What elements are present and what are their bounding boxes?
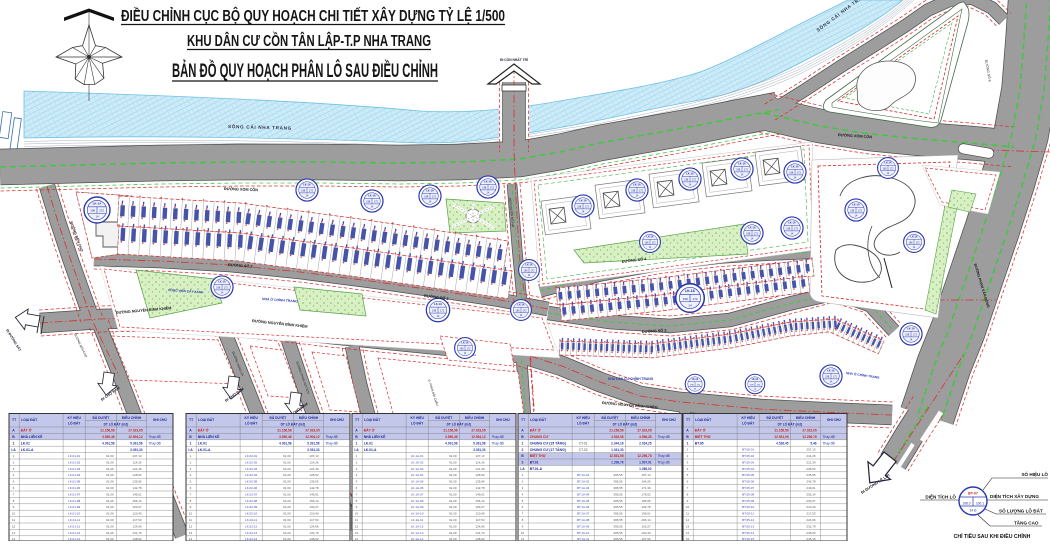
svg-text:142,78: 142,78 bbox=[475, 486, 485, 490]
svg-text:12.904,12: 12.904,12 bbox=[471, 435, 485, 439]
svg-text:4.091,58: 4.091,58 bbox=[445, 441, 458, 445]
svg-text:91,00: 91,00 bbox=[449, 531, 457, 535]
svg-text:91,00: 91,00 bbox=[106, 480, 114, 484]
svg-text:91,00: 91,00 bbox=[283, 492, 291, 496]
svg-text:LK.01-06: LK.01-06 bbox=[68, 486, 81, 490]
svg-text:217,53: 217,53 bbox=[806, 512, 816, 516]
svg-text:395,55: 395,55 bbox=[613, 524, 623, 528]
svg-text:CHUNG CƯ (15 TẦNG): CHUNG CƯ (15 TẦNG) bbox=[530, 441, 566, 445]
svg-text:12.296,78: 12.296,78 bbox=[637, 454, 651, 458]
svg-text:LOẠI ĐẤT: LOẠI ĐẤT bbox=[364, 418, 381, 422]
svg-text:BT.05-12: BT.05-12 bbox=[742, 518, 754, 522]
svg-text:LK.02-05: LK.02-05 bbox=[245, 480, 258, 484]
svg-text:110,40: 110,40 bbox=[133, 512, 142, 516]
svg-text:156,14: 156,14 bbox=[309, 499, 319, 503]
svg-text:135,65: 135,65 bbox=[132, 480, 142, 484]
svg-text:ĐẤT Ở: ĐẤT Ở bbox=[530, 428, 541, 433]
svg-text:LK.02-03: LK.02-03 bbox=[245, 467, 258, 471]
svg-text:21.156,56: 21.156,56 bbox=[609, 429, 623, 433]
svg-text:KÝ HIỆU: KÝ HIỆU bbox=[244, 415, 258, 420]
svg-text:21.156,56: 21.156,56 bbox=[443, 429, 457, 433]
svg-text:91,00: 91,00 bbox=[283, 512, 291, 516]
svg-text:395,55: 395,55 bbox=[613, 537, 623, 541]
svg-text:91,00: 91,00 bbox=[449, 512, 457, 516]
svg-text:LK.1A-11: LK.1A-11 bbox=[411, 518, 424, 522]
svg-text:12: 12 bbox=[355, 524, 359, 528]
svg-text:DT LÔ ĐẤT (m2): DT LÔ ĐẤT (m2) bbox=[778, 422, 803, 427]
svg-text:DT LÔ ĐẤT (m2): DT LÔ ĐẤT (m2) bbox=[613, 422, 638, 427]
svg-text:LOẠI ĐẤT: LOẠI ĐẤT bbox=[21, 418, 38, 422]
svg-text:138,02: 138,02 bbox=[309, 537, 319, 541]
svg-text:192,78: 192,78 bbox=[641, 505, 651, 509]
svg-text:3.516,08: 3.516,08 bbox=[611, 435, 624, 439]
svg-text:ĐIỀU CHỈNH CỤC BỘ QUY HOẠCH CH: ĐIỀU CHỈNH CỤC BỘ QUY HOẠCH CHI TIẾT XÂY… bbox=[121, 7, 505, 25]
svg-text:I.A: I.A bbox=[11, 448, 16, 452]
svg-text:117,53: 117,53 bbox=[310, 518, 319, 522]
svg-text:221,39: 221,39 bbox=[806, 460, 816, 464]
svg-text:138,02: 138,02 bbox=[132, 537, 142, 541]
svg-text:12.531,06: 12.531,06 bbox=[774, 435, 788, 439]
svg-text:BT.05-07: BT.05-07 bbox=[742, 486, 754, 490]
svg-text:1.296,78: 1.296,78 bbox=[611, 461, 624, 465]
svg-text:LK.02-09: LK.02-09 bbox=[245, 505, 258, 509]
svg-text:91,00: 91,00 bbox=[449, 460, 457, 464]
svg-text:BT.05-06: BT.05-06 bbox=[742, 480, 754, 484]
svg-text:BT.05-04: BT.05-04 bbox=[742, 467, 754, 471]
svg-text:11: 11 bbox=[355, 518, 358, 522]
svg-text:LOẠI ĐẤT: LOẠI ĐẤT bbox=[198, 418, 215, 422]
svg-text:206,14: 206,14 bbox=[641, 518, 651, 522]
svg-text:ĐÃ DUYỆT: ĐÃ DUYỆT bbox=[269, 415, 286, 420]
svg-text:91,00: 91,00 bbox=[449, 473, 457, 477]
svg-text:11: 11 bbox=[686, 512, 689, 516]
svg-text:ĐIỀU CHỈNH: ĐIỀU CHỈNH bbox=[631, 415, 651, 420]
svg-text:91,00: 91,00 bbox=[449, 486, 457, 490]
svg-text:231,79: 231,79 bbox=[806, 524, 816, 528]
svg-text:1: 1 bbox=[356, 441, 358, 445]
svg-text:ĐIỀU CHỈNH: ĐIỀU CHỈNH bbox=[465, 415, 485, 420]
svg-text:3: 3 bbox=[522, 461, 524, 465]
svg-text:395,55: 395,55 bbox=[613, 505, 623, 509]
svg-text:91,00: 91,00 bbox=[449, 492, 457, 496]
svg-text:27.023,05: 27.023,05 bbox=[802, 429, 816, 433]
svg-text:LK.02-10: LK.02-10 bbox=[245, 512, 258, 516]
svg-text:ĐẤT Ở: ĐẤT Ở bbox=[695, 428, 706, 433]
svg-text:224,66: 224,66 bbox=[806, 518, 816, 522]
svg-text:LK.1A-05: LK.1A-05 bbox=[411, 480, 424, 484]
svg-text:91,00: 91,00 bbox=[106, 486, 114, 490]
svg-text:156,14: 156,14 bbox=[475, 499, 485, 503]
svg-text:114,26: 114,26 bbox=[310, 460, 319, 464]
svg-text:LK.01-A: LK.01-A bbox=[21, 448, 34, 452]
svg-text:10: 10 bbox=[355, 512, 359, 516]
svg-text:LK.1A-12: LK.1A-12 bbox=[411, 524, 424, 528]
svg-text:KÝ HIỆU: KÝ HIỆU bbox=[67, 415, 81, 420]
svg-text:14: 14 bbox=[189, 537, 193, 541]
svg-text:107,13: 107,13 bbox=[309, 454, 319, 458]
svg-text:I.A: I.A bbox=[354, 448, 359, 452]
svg-text:CT-02: CT-02 bbox=[579, 448, 588, 452]
svg-text:10: 10 bbox=[189, 512, 193, 516]
svg-text:BT.1A-01: BT.1A-01 bbox=[577, 473, 590, 477]
svg-text:LK.1A-08: LK.1A-08 bbox=[411, 499, 424, 503]
svg-text:117,53: 117,53 bbox=[476, 518, 485, 522]
svg-text:BT.1A-07: BT.1A-07 bbox=[577, 512, 590, 516]
svg-text:KÝ HIỆU: KÝ HIỆU bbox=[410, 415, 424, 420]
svg-text:BẢN ĐỒ QUY HOẠCH PHÂN LÔ SAU Đ: BẢN ĐỒ QUY HOẠCH PHÂN LÔ SAU ĐIỀU CHỈNH bbox=[172, 60, 438, 82]
svg-text:LK.01-01: LK.01-01 bbox=[68, 454, 81, 458]
svg-text:103,27: 103,27 bbox=[309, 505, 319, 509]
svg-text:91,00: 91,00 bbox=[449, 454, 457, 458]
svg-text:LK.01: LK.01 bbox=[364, 441, 373, 445]
svg-text:ĐIỀU CHỈNH: ĐIỀU CHỈNH bbox=[796, 415, 816, 420]
svg-text:LK.01-03: LK.01-03 bbox=[68, 467, 81, 471]
svg-text:LK.01-10: LK.01-10 bbox=[68, 512, 81, 516]
svg-text:4.091,58: 4.091,58 bbox=[102, 441, 115, 445]
svg-text:Thay đổi: Thay đổi bbox=[658, 461, 671, 465]
svg-text:BT.05: BT.05 bbox=[695, 441, 704, 445]
svg-text:DT LÔ ĐẤT (m2): DT LÔ ĐẤT (m2) bbox=[281, 422, 306, 427]
svg-text:BT.1A-10: BT.1A-10 bbox=[577, 531, 590, 535]
svg-text:210,40: 210,40 bbox=[806, 505, 816, 509]
svg-text:153,27: 153,27 bbox=[641, 524, 651, 528]
svg-text:91,00: 91,00 bbox=[106, 460, 114, 464]
svg-text:21.156,56: 21.156,56 bbox=[100, 429, 114, 433]
svg-text:91,00: 91,00 bbox=[106, 537, 114, 541]
svg-text:LOẠI ĐẤT: LOẠI ĐẤT bbox=[530, 418, 547, 422]
svg-text:91,00: 91,00 bbox=[283, 499, 291, 503]
svg-text:DT LÔ ĐẤT (m2): DT LÔ ĐẤT (m2) bbox=[447, 422, 472, 427]
svg-text:BT.05-05: BT.05-05 bbox=[742, 473, 754, 477]
svg-text:LK.1A-10: LK.1A-10 bbox=[411, 512, 424, 516]
svg-text:LÔ ĐẤT: LÔ ĐẤT bbox=[411, 421, 423, 426]
svg-text:4.526,45: 4.526,45 bbox=[776, 441, 789, 445]
svg-text:5.391,58: 5.391,58 bbox=[307, 441, 320, 445]
svg-text:LK.01-09: LK.01-09 bbox=[68, 505, 81, 509]
svg-text:SỐ HIỆU LÔ: SỐ HIỆU LÔ bbox=[1021, 470, 1048, 477]
svg-text:131,79: 131,79 bbox=[475, 531, 485, 535]
svg-text:91,00: 91,00 bbox=[283, 460, 291, 464]
svg-text:114,26: 114,26 bbox=[133, 460, 142, 464]
svg-text:110,40: 110,40 bbox=[310, 512, 319, 516]
svg-text:Thay đổi: Thay đổi bbox=[326, 441, 339, 445]
svg-text:185,65: 185,65 bbox=[641, 499, 651, 503]
svg-text:ĐÃ DUYỆT: ĐÃ DUYỆT bbox=[92, 415, 109, 420]
svg-text:LK.1A-04: LK.1A-04 bbox=[411, 473, 424, 477]
svg-text:ĐÃ DUYỆT: ĐÃ DUYỆT bbox=[435, 415, 452, 420]
svg-text:3.391,33: 3.391,33 bbox=[130, 448, 143, 452]
svg-text:124,66: 124,66 bbox=[132, 524, 142, 528]
svg-text:167,53: 167,53 bbox=[641, 537, 651, 541]
svg-text:121,39: 121,39 bbox=[309, 467, 319, 471]
svg-text:138,02: 138,02 bbox=[475, 537, 485, 541]
svg-text:12.904,12: 12.904,12 bbox=[305, 435, 319, 439]
svg-text:91,00: 91,00 bbox=[106, 473, 114, 477]
svg-text:91,00: 91,00 bbox=[106, 524, 114, 528]
svg-text:91,00: 91,00 bbox=[106, 492, 114, 496]
svg-text:11: 11 bbox=[521, 537, 524, 541]
svg-text:3.391,33: 3.391,33 bbox=[473, 448, 486, 452]
svg-text:Thay đổi: Thay đổi bbox=[149, 441, 162, 445]
svg-text:10: 10 bbox=[12, 512, 16, 516]
svg-text:3.590,46: 3.590,46 bbox=[102, 435, 115, 439]
svg-text:BIỆT THỰ: BIỆT THỰ bbox=[530, 453, 546, 458]
svg-text:156,14: 156,14 bbox=[132, 499, 142, 503]
svg-text:228,52: 228,52 bbox=[806, 467, 816, 471]
svg-text:121,39: 121,39 bbox=[475, 467, 485, 471]
svg-text:135,65: 135,65 bbox=[309, 480, 319, 484]
svg-text:14 lô: 14 lô bbox=[970, 509, 977, 513]
svg-text:242,78: 242,78 bbox=[806, 480, 816, 484]
svg-text:1.286,02: 1.286,02 bbox=[639, 467, 652, 471]
svg-text:KHU DÂN CƯ CỒN TÂN LẬP-T.P NHA: KHU DÂN CƯ CỒN TÂN LẬP-T.P NHA TRANG bbox=[187, 32, 431, 50]
svg-text:199,01: 199,01 bbox=[641, 512, 651, 516]
svg-text:Thay đổi: Thay đổi bbox=[492, 435, 505, 439]
svg-text:BIỆT THỰ: BIỆT THỰ bbox=[695, 434, 711, 439]
svg-text:128,52: 128,52 bbox=[309, 473, 319, 477]
svg-text:117,53: 117,53 bbox=[133, 518, 142, 522]
svg-text:SỐ LƯỢNG LÔ ĐẤT: SỐ LƯỢNG LÔ ĐẤT bbox=[999, 507, 1043, 514]
svg-text:5.391,58: 5.391,58 bbox=[473, 441, 486, 445]
svg-text:91,00: 91,00 bbox=[449, 524, 457, 528]
svg-text:CHỈ TIÊU SAU KHI ĐIỀU CHỈNH: CHỈ TIÊU SAU KHI ĐIỀU CHỈNH bbox=[954, 532, 1031, 540]
svg-text:91,00: 91,00 bbox=[449, 537, 457, 541]
svg-text:BT.1A-03: BT.1A-03 bbox=[577, 486, 590, 490]
svg-text:124,66: 124,66 bbox=[309, 524, 319, 528]
svg-text:142,78: 142,78 bbox=[132, 486, 142, 490]
svg-text:BT.1A-05: BT.1A-05 bbox=[577, 499, 590, 503]
svg-text:395,55: 395,55 bbox=[613, 486, 623, 490]
svg-text:13: 13 bbox=[189, 531, 193, 535]
svg-text:91,00: 91,00 bbox=[449, 518, 457, 522]
svg-text:KHU DÂN CƯ CHỈNH TRANG: KHU DÂN CƯ CHỈNH TRANG bbox=[608, 376, 654, 381]
svg-text:LK.1A-01: LK.1A-01 bbox=[411, 454, 424, 458]
svg-text:LK.01-05: LK.01-05 bbox=[68, 480, 81, 484]
svg-text:131,79: 131,79 bbox=[309, 531, 319, 535]
svg-text:LK.01: LK.01 bbox=[21, 441, 30, 445]
svg-text:Thay đổi: Thay đổi bbox=[492, 441, 505, 445]
svg-text:203,27: 203,27 bbox=[806, 499, 816, 503]
svg-text:LÔ ĐẤT: LÔ ĐẤT bbox=[68, 421, 80, 426]
svg-text:3.590,46: 3.590,46 bbox=[445, 435, 458, 439]
svg-text:91,00: 91,00 bbox=[449, 499, 457, 503]
svg-text:ĐIỀU CHỈNH: ĐIỀU CHỈNH bbox=[299, 415, 319, 420]
svg-text:103,27: 103,27 bbox=[475, 505, 485, 509]
svg-text:BT.1A-06: BT.1A-06 bbox=[577, 505, 590, 509]
svg-text:LK.01-02: LK.01-02 bbox=[68, 460, 81, 464]
svg-text:178,52: 178,52 bbox=[641, 492, 651, 496]
svg-text:ĐÃ DUYỆT: ĐÃ DUYỆT bbox=[766, 415, 783, 420]
svg-text:1: 1 bbox=[687, 441, 689, 445]
svg-text:LK.01-12: LK.01-12 bbox=[68, 524, 81, 528]
svg-text:BT.1A-11: BT.1A-11 bbox=[577, 537, 589, 541]
svg-text:LK.01-A: LK.01-A bbox=[364, 448, 377, 452]
svg-text:395,55: 395,55 bbox=[613, 512, 623, 516]
svg-text:ĐẤT Ở: ĐẤT Ở bbox=[198, 428, 209, 433]
svg-text:12.904,12: 12.904,12 bbox=[128, 435, 142, 439]
svg-text:TẦNG CAO: TẦNG CAO bbox=[1014, 520, 1039, 526]
svg-text:LK.02-02: LK.02-02 bbox=[245, 460, 258, 464]
svg-text:2.344,18: 2.344,18 bbox=[611, 441, 624, 445]
svg-text:LK.02-14: LK.02-14 bbox=[245, 537, 258, 541]
svg-text:DT LÔ ĐẤT (m2): DT LÔ ĐẤT (m2) bbox=[104, 422, 129, 427]
svg-text:ĐÃ DUYỆT: ĐÃ DUYỆT bbox=[601, 415, 618, 420]
svg-text:164,26: 164,26 bbox=[641, 480, 651, 484]
svg-text:238,02: 238,02 bbox=[806, 531, 816, 535]
svg-text:91,00: 91,00 bbox=[106, 531, 114, 535]
svg-text:LK.1A-09: LK.1A-09 bbox=[411, 505, 424, 509]
svg-text:I.A: I.A bbox=[520, 467, 525, 471]
svg-text:4.596,28: 4.596,28 bbox=[639, 435, 652, 439]
svg-text:160,40: 160,40 bbox=[641, 531, 651, 535]
svg-text:91,00: 91,00 bbox=[283, 467, 291, 471]
svg-text:NHÀ LIÊN KẾ: NHÀ LIÊN KẾ bbox=[364, 434, 386, 439]
svg-text:BT.05-15: BT.05-15 bbox=[742, 537, 754, 541]
svg-text:91,00: 91,00 bbox=[106, 512, 114, 516]
svg-text:142,78: 142,78 bbox=[309, 486, 319, 490]
svg-text:395,55: 395,55 bbox=[613, 518, 623, 522]
svg-text:ĐIỀU CHỈNH: ĐIỀU CHỈNH bbox=[122, 415, 142, 420]
svg-text:LK.1A-13: LK.1A-13 bbox=[411, 531, 424, 535]
svg-text:91,00: 91,00 bbox=[106, 499, 114, 503]
svg-text:DIỆN TÍCH LÔ: DIỆN TÍCH LÔ bbox=[925, 493, 956, 500]
svg-text:BT.05-02: BT.05-02 bbox=[742, 454, 754, 458]
svg-text:BT.05-08: BT.05-08 bbox=[742, 492, 754, 496]
svg-text:LK.02-13: LK.02-13 bbox=[245, 531, 258, 535]
svg-text:KÝ HIỆU: KÝ HIỆU bbox=[741, 415, 755, 420]
svg-text:GHI CHÚ: GHI CHÚ bbox=[496, 417, 511, 422]
svg-text:GHI CHÚ: GHI CHÚ bbox=[153, 417, 168, 422]
svg-text:Thay đổi: Thay đổi bbox=[326, 435, 339, 439]
svg-text:91,00: 91,00 bbox=[283, 518, 291, 522]
svg-text:1: 1 bbox=[522, 441, 524, 445]
svg-text:BT.1A-08: BT.1A-08 bbox=[577, 518, 590, 522]
svg-text:91,00: 91,00 bbox=[106, 454, 114, 458]
svg-text:149,01: 149,01 bbox=[132, 492, 142, 496]
svg-text:LÔ ĐẤT: LÔ ĐẤT bbox=[742, 421, 754, 426]
svg-text:LK.02-04: LK.02-04 bbox=[245, 473, 258, 477]
svg-text:CHUNG CƯ: CHUNG CƯ bbox=[530, 435, 549, 439]
svg-text:LK.01-08: LK.01-08 bbox=[68, 499, 81, 503]
svg-text:BT.05-14: BT.05-14 bbox=[742, 531, 754, 535]
svg-text:BT.1A-04: BT.1A-04 bbox=[577, 492, 590, 496]
svg-text:245,15: 245,15 bbox=[806, 537, 816, 541]
svg-text:108.0: 108.0 bbox=[963, 502, 971, 506]
svg-text:256,14: 256,14 bbox=[806, 492, 816, 496]
svg-text:BT.05-10: BT.05-10 bbox=[742, 505, 754, 509]
svg-text:157,13: 157,13 bbox=[641, 473, 651, 477]
svg-text:LK.01-A: LK.01-A bbox=[198, 448, 211, 452]
svg-text:LK.02-06: LK.02-06 bbox=[245, 486, 258, 490]
svg-text:149,01: 149,01 bbox=[475, 492, 485, 496]
svg-text:1.097,91: 1.097,91 bbox=[639, 461, 652, 465]
svg-text:LK.02-08: LK.02-08 bbox=[245, 499, 258, 503]
svg-text:LK.01-11: LK.01-11 bbox=[68, 518, 80, 522]
svg-text:91,00: 91,00 bbox=[106, 467, 114, 471]
svg-text:ĐẤT Ở: ĐẤT Ở bbox=[21, 428, 32, 433]
svg-text:CT-01: CT-01 bbox=[579, 441, 588, 445]
svg-text:91,00: 91,00 bbox=[106, 505, 114, 509]
svg-text:11: 11 bbox=[189, 518, 192, 522]
svg-text:LOẠI ĐẤT: LOẠI ĐẤT bbox=[695, 418, 712, 422]
svg-text:13: 13 bbox=[12, 531, 16, 535]
svg-text:214,26: 214,26 bbox=[806, 454, 816, 458]
svg-text:91,00: 91,00 bbox=[283, 486, 291, 490]
svg-text:BT.05-13: BT.05-13 bbox=[742, 524, 754, 528]
svg-text:12: 12 bbox=[686, 518, 690, 522]
svg-text:91,00: 91,00 bbox=[449, 467, 457, 471]
svg-text:128,52: 128,52 bbox=[132, 473, 142, 477]
svg-text:BT.05-11: BT.05-11 bbox=[742, 512, 754, 516]
svg-text:5.391,58: 5.391,58 bbox=[130, 441, 143, 445]
svg-text:LK.1A-06: LK.1A-06 bbox=[411, 486, 424, 490]
svg-text:LK.01-04: LK.01-04 bbox=[68, 473, 81, 477]
svg-text:LK.02-01: LK.02-01 bbox=[245, 454, 258, 458]
svg-text:CHUNG CƯ (17 TẦNG): CHUNG CƯ (17 TẦNG) bbox=[530, 448, 566, 452]
svg-text:1: 1 bbox=[13, 441, 15, 445]
svg-text:395,55: 395,55 bbox=[613, 473, 623, 477]
svg-text:Thay đổi: Thay đổi bbox=[658, 454, 671, 458]
svg-text:BT.05-09: BT.05-09 bbox=[742, 499, 754, 503]
svg-text:4.091,58: 4.091,58 bbox=[279, 441, 292, 445]
svg-text:171,39: 171,39 bbox=[641, 486, 651, 490]
svg-text:121,39: 121,39 bbox=[132, 467, 142, 471]
svg-text:LK.01: LK.01 bbox=[198, 441, 207, 445]
svg-text:27.023,05: 27.023,05 bbox=[128, 429, 142, 433]
svg-text:BT.05-01: BT.05-01 bbox=[742, 448, 754, 452]
svg-text:Thay đổi: Thay đổi bbox=[823, 435, 836, 439]
svg-text:91,00: 91,00 bbox=[283, 524, 291, 528]
svg-text:91,00: 91,00 bbox=[449, 505, 457, 509]
svg-text:BT-07: BT-07 bbox=[968, 492, 978, 496]
svg-text:12: 12 bbox=[12, 524, 16, 528]
svg-text:27.023,05: 27.023,05 bbox=[471, 429, 485, 433]
svg-text:BT.01: BT.01 bbox=[530, 461, 539, 465]
svg-text:10: 10 bbox=[521, 531, 525, 535]
svg-text:LÔ ĐẤT: LÔ ĐẤT bbox=[577, 421, 589, 426]
svg-text:LK.1A-02: LK.1A-02 bbox=[411, 460, 424, 464]
svg-text:12.296,78: 12.296,78 bbox=[802, 435, 816, 439]
svg-text:13: 13 bbox=[355, 531, 359, 535]
svg-text:27.023,05: 27.023,05 bbox=[637, 429, 651, 433]
svg-text:128,52: 128,52 bbox=[475, 473, 485, 477]
svg-text:124,66: 124,66 bbox=[475, 524, 485, 528]
svg-text:149,01: 149,01 bbox=[309, 492, 319, 496]
svg-text:3.590,46: 3.590,46 bbox=[279, 435, 292, 439]
svg-text:3.391,33: 3.391,33 bbox=[307, 448, 320, 452]
svg-text:14: 14 bbox=[355, 537, 359, 541]
svg-text:13: 13 bbox=[686, 524, 690, 528]
svg-text:249,01: 249,01 bbox=[806, 486, 816, 490]
svg-text:14: 14 bbox=[12, 537, 16, 541]
svg-text:Thay đổi: Thay đổi bbox=[823, 441, 836, 445]
svg-text:GHI CHÚ: GHI CHÚ bbox=[827, 417, 842, 422]
svg-text:Thay đổi: Thay đổi bbox=[658, 435, 671, 439]
svg-text:LK.01-13: LK.01-13 bbox=[68, 531, 81, 535]
svg-text:LK.1A-03: LK.1A-03 bbox=[411, 467, 424, 471]
svg-text:91,00: 91,00 bbox=[283, 537, 291, 541]
svg-text:91,00: 91,00 bbox=[283, 531, 291, 535]
svg-text:ĐẤT Ở: ĐẤT Ở bbox=[364, 428, 375, 433]
svg-text:GHI CHÚ: GHI CHÚ bbox=[330, 417, 345, 422]
svg-text:207,13: 207,13 bbox=[806, 448, 816, 452]
svg-text:91,00: 91,00 bbox=[283, 454, 291, 458]
svg-text:2.034,25: 2.034,25 bbox=[639, 441, 652, 445]
svg-text:12: 12 bbox=[189, 524, 193, 528]
svg-text:2: 2 bbox=[522, 448, 524, 452]
svg-text:15: 15 bbox=[686, 537, 690, 541]
svg-text:BT.1A-02: BT.1A-02 bbox=[577, 480, 590, 484]
